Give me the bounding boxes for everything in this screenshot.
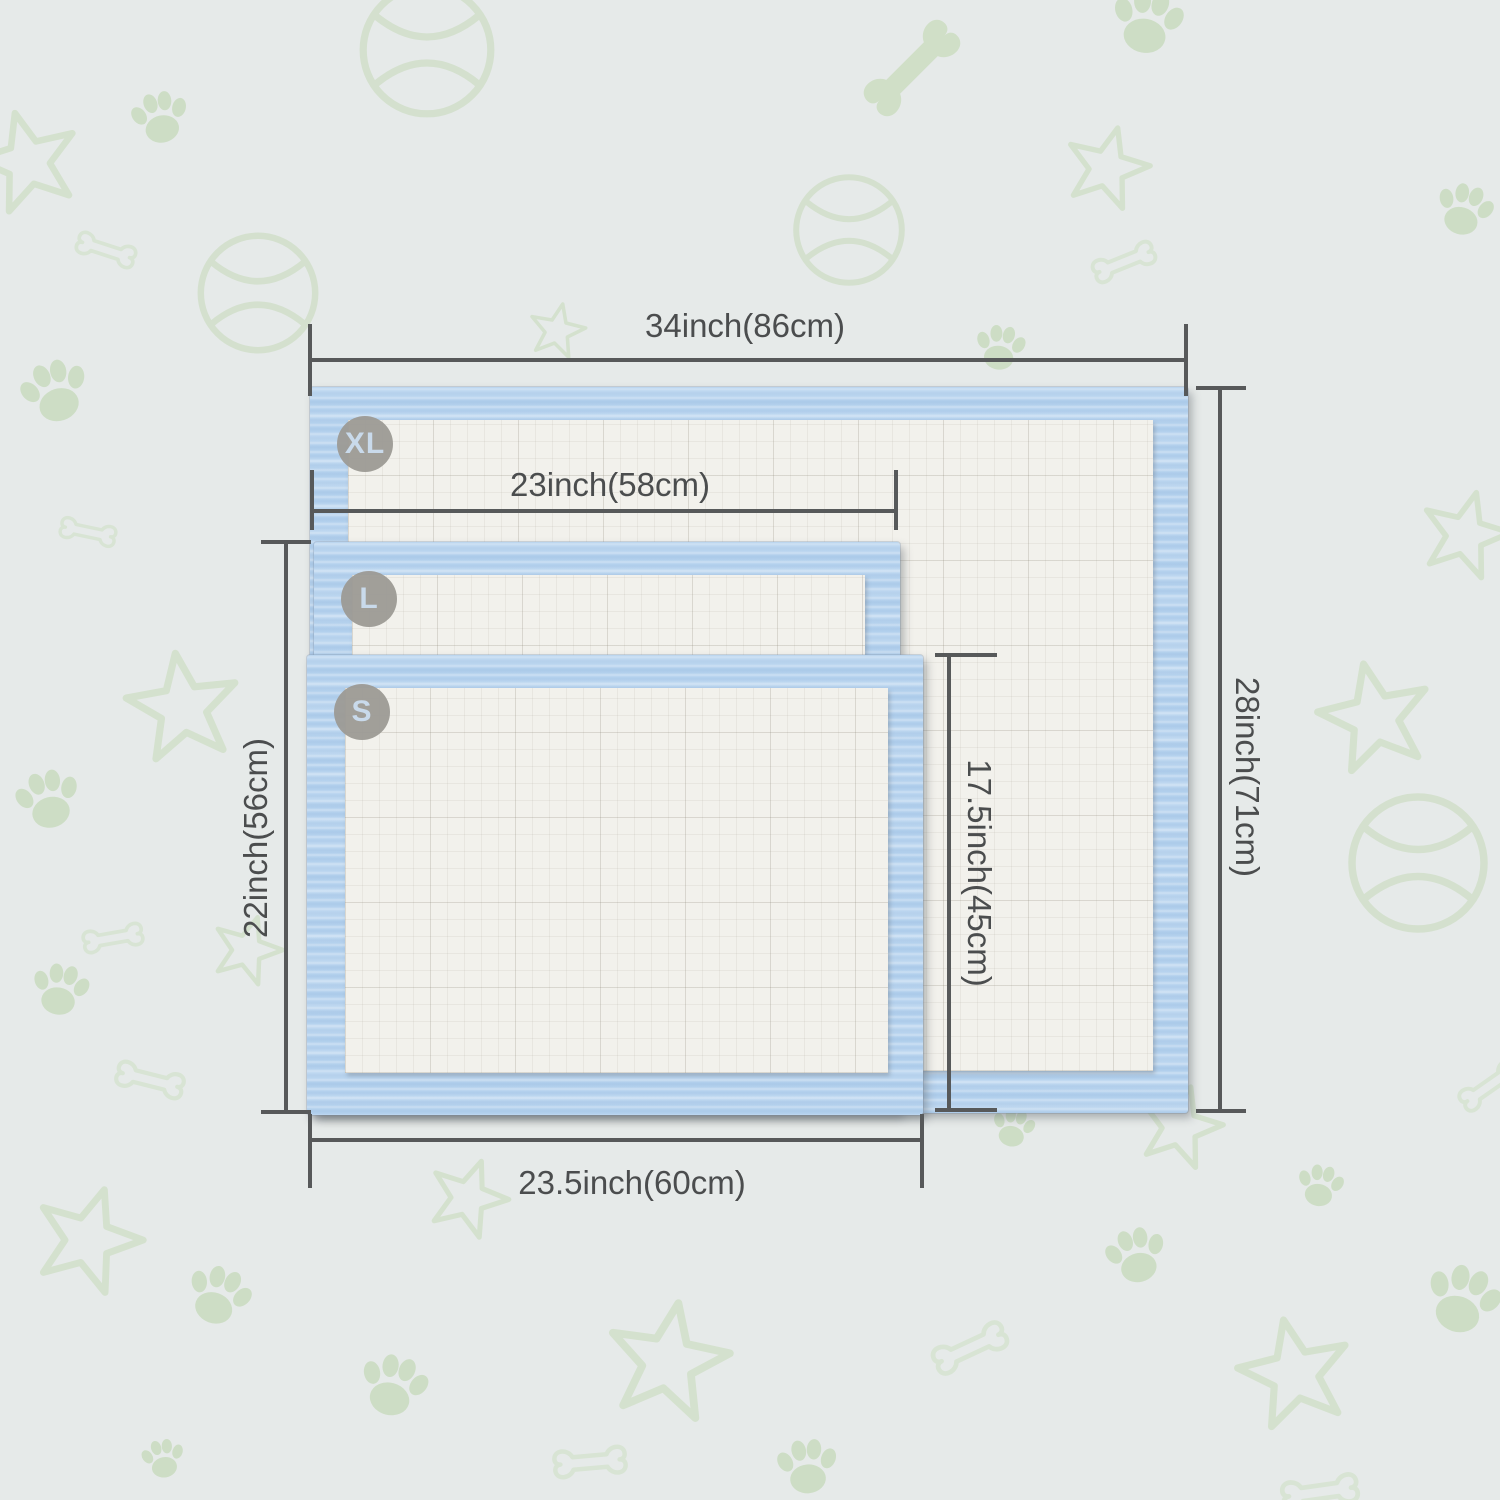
paw-icon (1104, 0, 1191, 59)
paw-icon (1414, 1255, 1500, 1344)
star-icon (1058, 117, 1157, 212)
dimension-tick (308, 1114, 312, 1188)
dimension-line-l-height (284, 542, 288, 1114)
paw-icon (971, 321, 1030, 373)
dimension-tick (1196, 1109, 1246, 1113)
size-badge-l: L (341, 571, 397, 627)
paw-icon (125, 86, 196, 149)
dimension-tick (1196, 386, 1246, 390)
tennis-ball-icon (796, 177, 902, 283)
dimension-tick (894, 470, 898, 530)
pad-s: S (307, 655, 923, 1115)
paw-icon (1098, 1221, 1174, 1290)
tennis-ball-icon (201, 236, 315, 350)
star-icon (0, 100, 88, 216)
dimension-tick (920, 1114, 924, 1188)
dimension-line-s-height (947, 655, 951, 1112)
dimension-tick (935, 1108, 997, 1112)
pad-s-core (345, 688, 888, 1073)
s-height-label: 17.5inch(45cm) (959, 673, 999, 1073)
size-comparison-diagram: XL L S 34inch(86cm) 23inch(58cm) 22inch(… (0, 0, 1500, 1500)
paw-icon (773, 1436, 843, 1496)
dimension-line-xl-width (310, 358, 1188, 362)
tennis-ball-icon (363, 0, 491, 114)
bone-icon (75, 231, 138, 270)
dimension-line-xl-height (1218, 388, 1222, 1113)
l-width-label: 23inch(58cm) (410, 465, 810, 505)
star-icon (121, 646, 244, 762)
bone-icon (1091, 240, 1158, 285)
bone-icon (82, 922, 144, 953)
paw-icon (351, 1346, 437, 1424)
dimension-line-s-width (310, 1138, 924, 1142)
paw-icon (1292, 1161, 1348, 1211)
dimension-tick (310, 470, 314, 530)
dimension-tick (308, 324, 312, 396)
star-icon (1230, 1309, 1358, 1431)
star-icon (1310, 653, 1438, 775)
xl-height-label: 28inch(71cm) (1227, 577, 1267, 977)
paw-icon (8, 763, 89, 836)
bone-icon (859, 15, 965, 121)
bone-icon (1457, 1059, 1500, 1114)
size-badge-s: S (334, 684, 390, 740)
bone-icon (931, 1320, 1010, 1376)
size-badge-xl: XL (337, 416, 393, 472)
paw-icon (177, 1256, 261, 1334)
star-icon (24, 1173, 154, 1298)
dimension-tick (261, 540, 311, 544)
dimension-tick (1184, 324, 1188, 396)
star-icon (601, 1293, 737, 1422)
bone-icon (1281, 1473, 1359, 1500)
bone-icon (59, 517, 117, 548)
paw-icon (26, 959, 95, 1020)
bone-icon (554, 1446, 627, 1478)
paw-icon (11, 351, 99, 431)
star-icon (1414, 482, 1500, 582)
tennis-ball-icon (1352, 797, 1484, 929)
l-height-label: 22inch(56cm) (236, 638, 276, 1038)
paw-icon (1428, 176, 1500, 242)
xl-width-label: 34inch(86cm) (545, 306, 945, 346)
bone-icon (115, 1060, 186, 1100)
dimension-tick (261, 1110, 311, 1114)
dimension-line-l-width (312, 509, 898, 513)
s-width-label: 23.5inch(60cm) (432, 1163, 832, 1203)
paw-icon (137, 1435, 189, 1481)
dimension-tick (935, 653, 997, 657)
